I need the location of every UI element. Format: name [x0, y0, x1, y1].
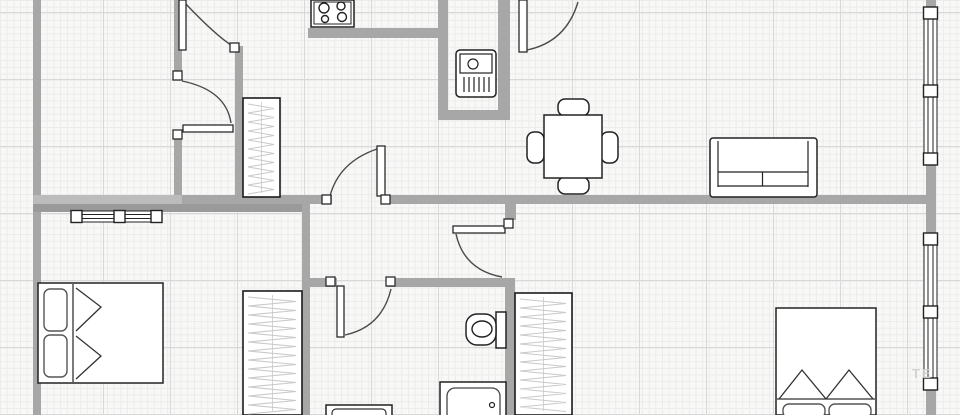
- floor-plan: TE: [0, 0, 960, 415]
- wall-bedroom1-right: [302, 204, 310, 415]
- bed-bedroom2: [776, 308, 876, 415]
- dining-table-set: [527, 99, 618, 194]
- dresser-hall: [326, 405, 392, 415]
- bed-bedroom1: [38, 283, 163, 383]
- wall-upper-hall-left-b: [174, 139, 182, 204]
- bathtub: [440, 382, 506, 415]
- wall-boiler-niche-right: [498, 0, 510, 120]
- wardrobe-kitchen: [243, 98, 280, 197]
- door-kitchen-top-door-icon: [519, 0, 578, 52]
- stove-cooktop: [311, 0, 354, 27]
- sofa: [710, 138, 817, 197]
- door-corridor-east-door-icon: [453, 219, 513, 277]
- boiler: [456, 50, 496, 97]
- wall-main-horiz-left: [33, 195, 182, 204]
- wall-boiler-niche-bottom: [438, 110, 510, 120]
- toilet: [466, 312, 506, 348]
- wall-main-horiz-right: [382, 195, 936, 204]
- door-hall-south-door-icon: [326, 277, 395, 337]
- wall-hall2-top-right: [387, 278, 510, 287]
- window-right-top-window-icon: [924, 7, 938, 165]
- wall-corridor-door-stub: [505, 204, 516, 220]
- wall-upper-hall-right: [235, 46, 243, 204]
- window-bedroom1-window-icon: [71, 211, 162, 223]
- door-closet-top-door-icon: [179, 0, 239, 52]
- wardrobe-bedroom2: [515, 293, 572, 415]
- wardrobe-bedroom1: [243, 291, 302, 415]
- floor-plan-canvas: TE: [0, 0, 960, 415]
- wall-kitchen-alcove: [308, 28, 438, 38]
- door-closet-mid-door-icon: [173, 71, 233, 139]
- watermark-text: TE: [912, 366, 933, 381]
- wall-boiler-niche-left: [438, 0, 448, 120]
- door-living-hall-door-icon: [322, 146, 390, 204]
